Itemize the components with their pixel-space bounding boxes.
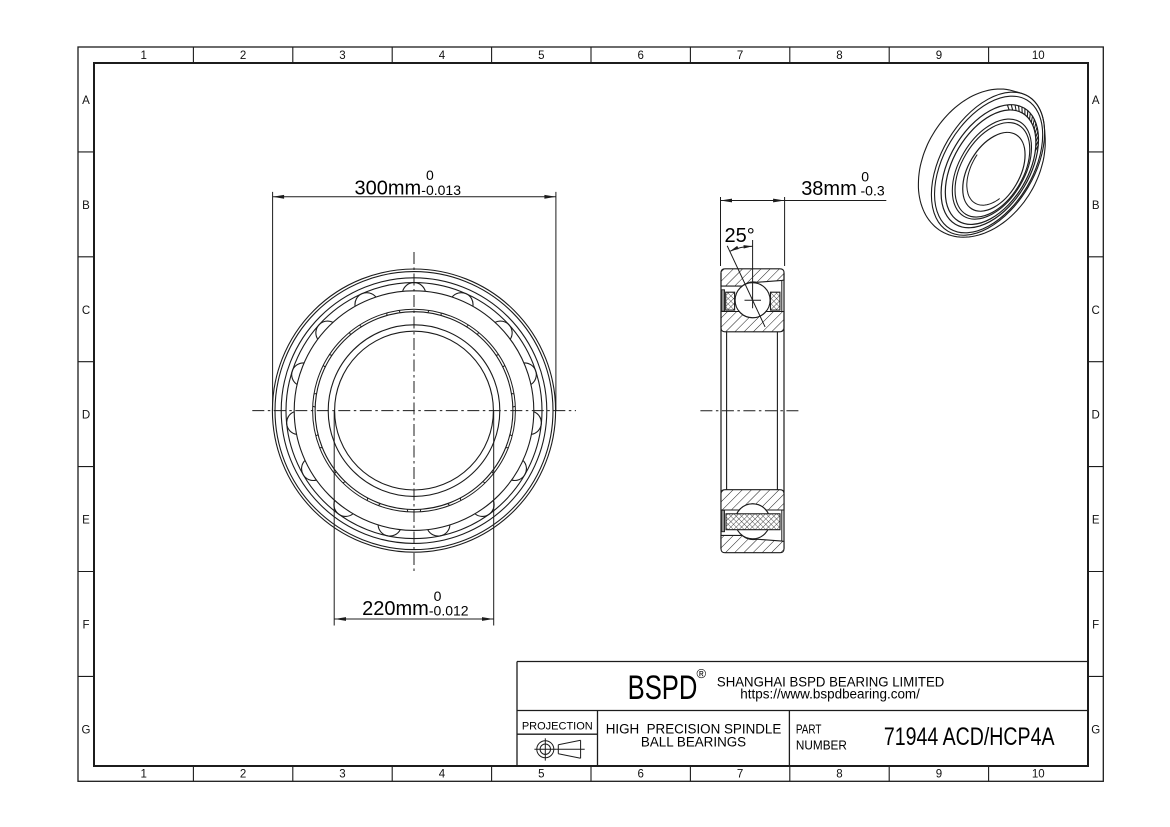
svg-text:BSPD: BSPD	[628, 669, 698, 707]
svg-text:1: 1	[140, 50, 146, 62]
svg-text:-0.012: -0.012	[429, 603, 469, 619]
svg-text:D: D	[1092, 410, 1100, 422]
svg-text:5: 5	[538, 769, 544, 781]
svg-text:1: 1	[140, 769, 146, 781]
svg-text:NUMBER: NUMBER	[796, 737, 847, 752]
svg-text:F: F	[82, 619, 89, 631]
svg-text:38mm: 38mm	[801, 178, 857, 200]
svg-text:F: F	[1092, 619, 1099, 631]
svg-text:2: 2	[240, 769, 246, 781]
svg-text:-0.013: -0.013	[421, 182, 461, 198]
svg-text:10: 10	[1032, 50, 1045, 62]
svg-text:6: 6	[637, 50, 643, 62]
svg-text:300mm: 300mm	[355, 178, 422, 200]
svg-text:B: B	[1092, 200, 1100, 212]
svg-text:D: D	[82, 410, 90, 422]
svg-text:G: G	[82, 724, 91, 736]
svg-text:71944 ACD/HCP4A: 71944 ACD/HCP4A	[884, 723, 1055, 751]
svg-text:9: 9	[936, 50, 942, 62]
svg-text:-0.3: -0.3	[861, 182, 885, 198]
svg-text:220mm: 220mm	[362, 598, 429, 620]
svg-text:6: 6	[637, 769, 643, 781]
svg-text:A: A	[1092, 95, 1100, 107]
svg-text:25°: 25°	[725, 225, 755, 247]
svg-text:0: 0	[434, 588, 442, 604]
svg-text:®: ®	[697, 666, 707, 681]
svg-text:G: G	[1091, 724, 1100, 736]
svg-text:5: 5	[538, 50, 544, 62]
svg-text:2: 2	[240, 50, 246, 62]
svg-text:C: C	[1092, 305, 1100, 317]
svg-text:10: 10	[1032, 769, 1045, 781]
svg-text:4: 4	[439, 769, 446, 781]
svg-text:E: E	[82, 515, 90, 527]
svg-text:8: 8	[836, 769, 842, 781]
svg-text:9: 9	[936, 769, 942, 781]
svg-text:A: A	[82, 95, 90, 107]
svg-text:E: E	[1092, 515, 1100, 527]
svg-text:3: 3	[339, 769, 345, 781]
svg-text:B: B	[82, 200, 90, 212]
svg-text:4: 4	[439, 50, 446, 62]
svg-text:3: 3	[339, 50, 345, 62]
svg-text:0: 0	[861, 169, 869, 185]
svg-text:PART: PART	[796, 722, 822, 737]
svg-text:7: 7	[737, 769, 743, 781]
svg-text:7: 7	[737, 50, 743, 62]
svg-text:C: C	[82, 305, 90, 317]
svg-text:0: 0	[426, 167, 434, 183]
svg-text:8: 8	[836, 50, 842, 62]
svg-text:https://www.bspdbearing.com/: https://www.bspdbearing.com/	[740, 686, 920, 701]
svg-text:BALL BEARINGS: BALL BEARINGS	[641, 734, 746, 749]
svg-text:PROJECTION: PROJECTION	[522, 720, 593, 732]
